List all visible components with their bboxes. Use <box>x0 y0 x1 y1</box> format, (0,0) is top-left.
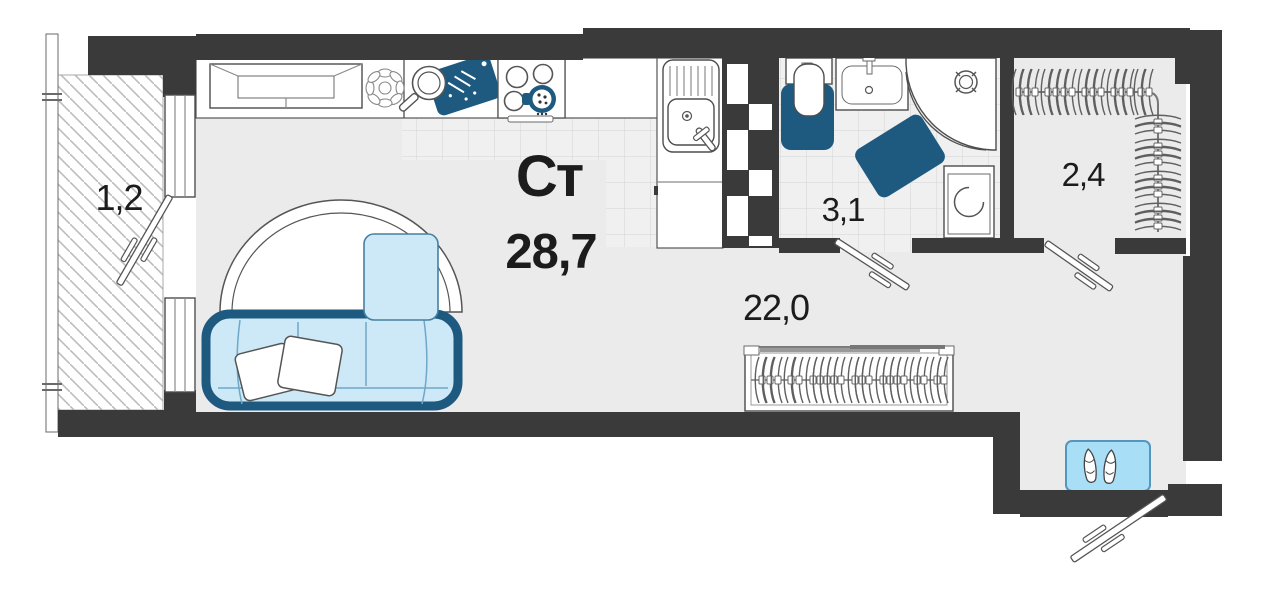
room-label-wardrobe: 2,4 <box>1062 156 1106 193</box>
entry <box>1066 441 1150 491</box>
room-label-bathroom: 3,1 <box>822 191 865 228</box>
toilet-icon <box>781 58 834 150</box>
plant-icon <box>366 69 404 107</box>
sofa-mattress <box>364 234 438 320</box>
washbasin-icon <box>836 54 908 110</box>
floorplan-page: Ст 28,7 1,2 3,1 22,0 2,4 <box>0 0 1280 605</box>
washing-machine-icon <box>944 166 994 238</box>
stove-icon <box>498 58 565 122</box>
floor-plan: Ст 28,7 1,2 3,1 22,0 2,4 <box>0 0 1280 605</box>
room-label-balcony: 1,2 <box>95 177 142 218</box>
total-area-label: 28,7 <box>505 225 596 279</box>
unit-type-label: Ст <box>516 144 583 209</box>
balcony-window-icon <box>165 95 195 392</box>
clothes-rack-icon <box>744 345 954 411</box>
room-label-living: 22,0 <box>743 287 809 328</box>
kitchen-sink-icon <box>663 60 721 156</box>
oven-handle-icon <box>508 116 553 122</box>
cooker-hood-icon <box>210 64 362 108</box>
pillow-icon <box>277 335 343 396</box>
